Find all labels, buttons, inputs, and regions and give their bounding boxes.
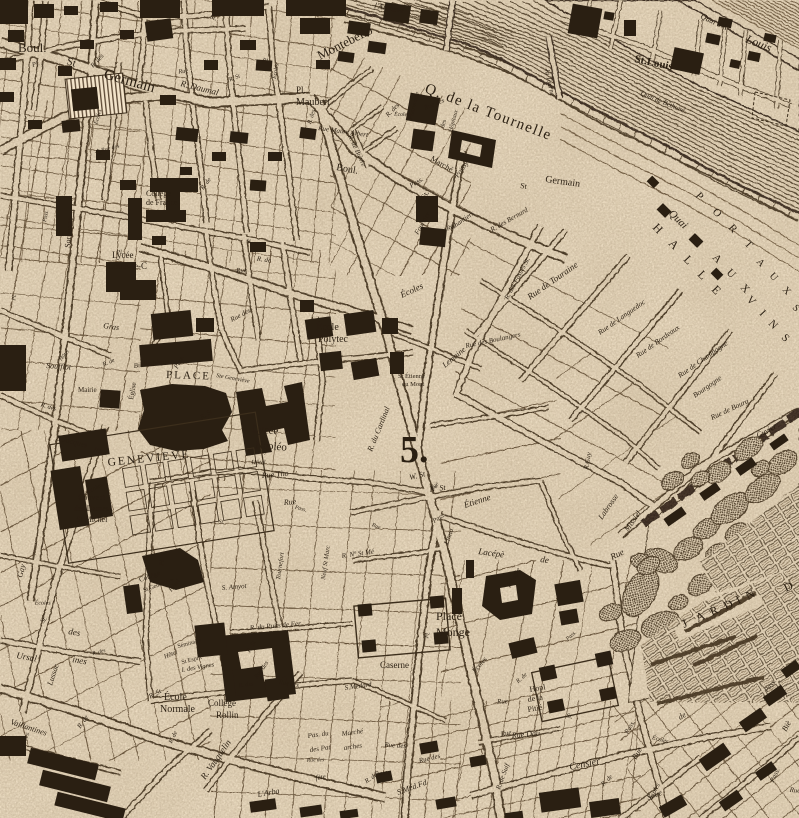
svg-text:St.: St. — [219, 519, 225, 525]
svg-text:Écoles: Écoles — [34, 599, 52, 607]
svg-text:de France: de France — [146, 198, 178, 207]
svg-text:Normale: Normale — [160, 704, 196, 715]
svg-text:Louis-le-C: Louis-le-C — [108, 261, 147, 271]
svg-text:Polytec: Polytec — [318, 334, 349, 345]
svg-text:Rue: Rue — [235, 267, 247, 275]
svg-text:du Mont: du Mont — [402, 381, 424, 388]
svg-text:École: École — [164, 691, 187, 703]
svg-text:Collège: Collège — [146, 189, 171, 198]
svg-text:PLACE: PLACE — [166, 369, 211, 383]
svg-text:5.: 5. — [400, 429, 429, 471]
svg-text:Monge: Monge — [436, 625, 470, 639]
svg-text:Lycée: Lycée — [112, 250, 134, 260]
svg-text:Rue: Rue — [282, 497, 297, 507]
svg-text:Boul.: Boul. — [18, 40, 47, 55]
svg-text:Soufflot: Soufflot — [46, 361, 72, 372]
svg-text:Couvent: Couvent — [78, 493, 106, 502]
svg-text:Maubert: Maubert — [296, 97, 330, 108]
svg-text:Lycée: Lycée — [252, 423, 279, 437]
svg-text:Pl.: Pl. — [296, 85, 306, 95]
svg-text:Caserne: Caserne — [380, 660, 409, 670]
svg-text:Rollin: Rollin — [216, 710, 239, 720]
svg-text:Rue des: Rue des — [306, 757, 325, 764]
svg-text:Rue des: Rue des — [383, 741, 407, 750]
svg-text:Collège: Collège — [208, 698, 236, 708]
svg-text:Rue: Rue — [177, 67, 189, 75]
svg-text:St Étienne: St Étienne — [398, 372, 425, 380]
svg-text:St.: St. — [246, 238, 252, 244]
svg-text:St Michel: St Michel — [76, 515, 108, 524]
svg-text:Mairie: Mairie — [78, 386, 97, 394]
svg-text:Rue: Rue — [496, 698, 508, 705]
svg-text:Place: Place — [436, 609, 462, 623]
svg-text:des Dames: des Dames — [74, 504, 109, 513]
svg-text:de: de — [540, 554, 550, 565]
svg-text:des: des — [68, 626, 82, 638]
svg-text:Hôtel: Hôtel — [250, 459, 265, 466]
svg-text:École: École — [316, 321, 339, 333]
svg-text:fète: fète — [315, 773, 326, 782]
